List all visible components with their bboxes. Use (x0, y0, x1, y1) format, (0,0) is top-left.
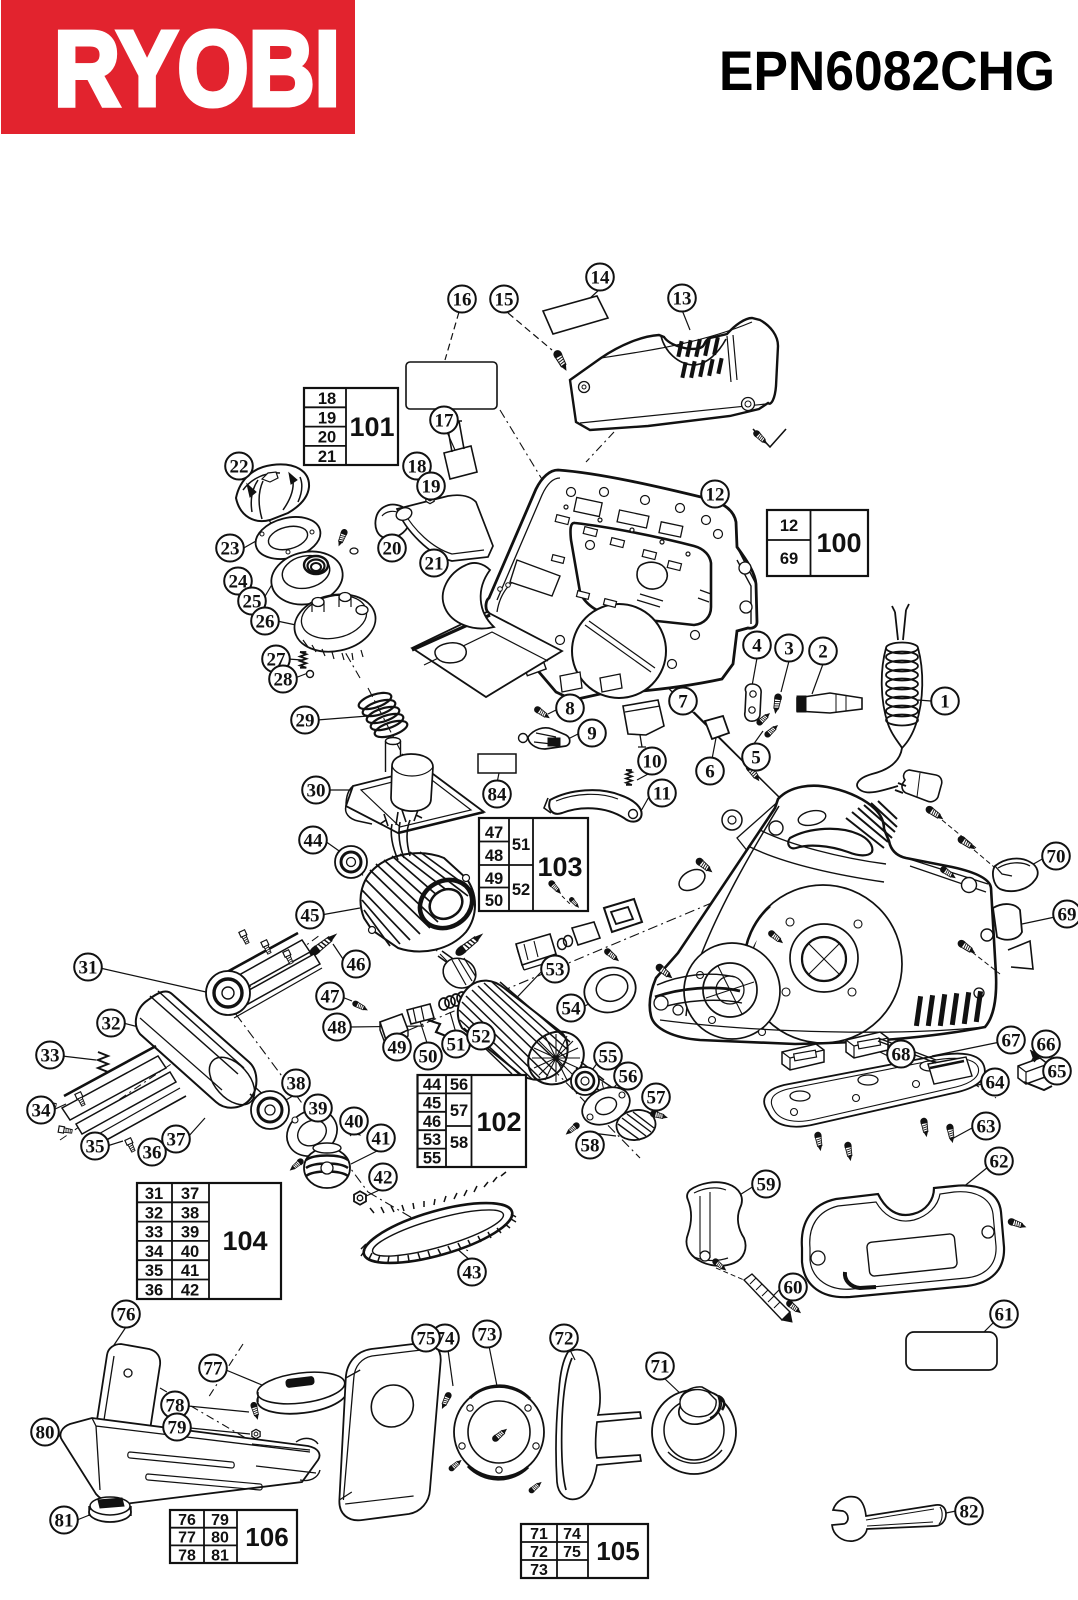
svg-text:69: 69 (780, 550, 798, 568)
svg-text:76: 76 (117, 1305, 136, 1326)
svg-text:19: 19 (318, 409, 336, 427)
svg-text:RYOBI: RYOBI (54, 10, 340, 128)
svg-text:31: 31 (79, 958, 98, 979)
svg-text:16: 16 (453, 290, 472, 311)
svg-text:57: 57 (450, 1102, 468, 1120)
svg-text:40: 40 (181, 1243, 199, 1261)
svg-text:56: 56 (450, 1076, 468, 1094)
svg-text:34: 34 (145, 1243, 164, 1261)
svg-text:21: 21 (425, 554, 444, 575)
svg-text:102: 102 (476, 1107, 521, 1137)
svg-text:70: 70 (1047, 847, 1066, 868)
svg-text:79: 79 (211, 1512, 229, 1529)
svg-text:33: 33 (145, 1224, 163, 1242)
svg-text:20: 20 (318, 429, 336, 447)
svg-text:12: 12 (780, 517, 798, 535)
svg-text:9: 9 (587, 724, 597, 745)
svg-text:40: 40 (345, 1112, 364, 1133)
svg-text:14: 14 (591, 268, 611, 289)
svg-text:58: 58 (450, 1134, 468, 1152)
svg-text:77: 77 (204, 1359, 224, 1380)
svg-text:39: 39 (181, 1224, 199, 1242)
svg-text:73: 73 (478, 1325, 497, 1346)
svg-text:30: 30 (307, 781, 326, 802)
svg-text:5: 5 (751, 748, 761, 769)
svg-text:54: 54 (562, 999, 582, 1020)
svg-text:72: 72 (555, 1329, 574, 1350)
svg-text:26: 26 (256, 612, 275, 633)
svg-text:19: 19 (422, 477, 441, 498)
svg-text:36: 36 (143, 1143, 162, 1164)
svg-text:57: 57 (647, 1088, 667, 1109)
svg-text:76: 76 (178, 1512, 196, 1529)
svg-text:29: 29 (296, 711, 315, 732)
svg-text:100: 100 (816, 528, 861, 558)
svg-text:44: 44 (423, 1076, 442, 1094)
svg-text:41: 41 (181, 1262, 199, 1280)
svg-text:34: 34 (32, 1101, 52, 1122)
svg-text:48: 48 (328, 1018, 347, 1039)
svg-text:10: 10 (643, 752, 662, 773)
svg-text:46: 46 (347, 955, 366, 976)
svg-text:69: 69 (1058, 905, 1077, 926)
svg-text:47: 47 (485, 824, 503, 842)
svg-text:8: 8 (565, 699, 575, 720)
svg-text:49: 49 (388, 1038, 407, 1059)
svg-text:12: 12 (706, 485, 725, 506)
svg-text:51: 51 (512, 836, 530, 854)
svg-text:37: 37 (181, 1185, 199, 1203)
svg-text:56: 56 (619, 1067, 638, 1088)
svg-text:67: 67 (1002, 1031, 1022, 1052)
svg-text:101: 101 (349, 412, 394, 442)
svg-text:13: 13 (673, 289, 692, 310)
svg-text:49: 49 (485, 870, 503, 888)
svg-text:68: 68 (892, 1045, 911, 1066)
svg-text:31: 31 (145, 1185, 163, 1203)
svg-text:84: 84 (488, 785, 508, 806)
svg-text:7: 7 (678, 692, 688, 713)
svg-text:47: 47 (321, 987, 341, 1008)
svg-text:15: 15 (495, 290, 514, 311)
svg-text:21: 21 (318, 448, 336, 466)
svg-text:73: 73 (530, 1562, 548, 1579)
svg-text:106: 106 (245, 1522, 288, 1552)
svg-text:2: 2 (818, 642, 828, 663)
svg-text:6: 6 (705, 762, 715, 783)
svg-text:58: 58 (581, 1136, 600, 1157)
svg-text:62: 62 (990, 1152, 1009, 1173)
svg-text:50: 50 (419, 1047, 438, 1068)
svg-text:42: 42 (374, 1168, 393, 1189)
svg-text:77: 77 (178, 1530, 196, 1547)
svg-text:104: 104 (222, 1226, 267, 1256)
svg-text:60: 60 (784, 1278, 803, 1299)
svg-text:51: 51 (447, 1035, 466, 1056)
svg-text:71: 71 (651, 1357, 670, 1378)
svg-text:66: 66 (1037, 1035, 1056, 1056)
svg-text:53: 53 (546, 960, 565, 981)
svg-text:35: 35 (86, 1137, 105, 1158)
svg-text:61: 61 (995, 1305, 1014, 1326)
svg-text:52: 52 (512, 881, 530, 899)
svg-text:20: 20 (383, 539, 402, 560)
svg-text:52: 52 (472, 1027, 491, 1048)
svg-text:75: 75 (417, 1329, 436, 1350)
svg-text:46: 46 (423, 1113, 441, 1131)
svg-text:44: 44 (304, 831, 324, 852)
svg-text:39: 39 (309, 1099, 328, 1120)
svg-text:71: 71 (530, 1526, 548, 1543)
svg-text:103: 103 (537, 852, 582, 882)
svg-text:75: 75 (563, 1544, 581, 1561)
svg-text:48: 48 (485, 847, 503, 865)
svg-text:55: 55 (423, 1150, 441, 1168)
svg-text:74: 74 (563, 1526, 581, 1543)
svg-text:1: 1 (940, 692, 950, 713)
svg-text:81: 81 (211, 1547, 229, 1564)
svg-text:80: 80 (211, 1530, 229, 1547)
svg-text:41: 41 (372, 1129, 391, 1150)
svg-text:11: 11 (653, 784, 671, 805)
svg-text:36: 36 (145, 1282, 163, 1300)
svg-text:3: 3 (784, 639, 794, 660)
svg-text:50: 50 (485, 892, 503, 910)
svg-text:28: 28 (274, 670, 293, 691)
svg-text:22: 22 (230, 457, 249, 478)
svg-text:37: 37 (167, 1130, 187, 1151)
svg-text:18: 18 (318, 390, 336, 408)
svg-text:105: 105 (596, 1536, 639, 1566)
svg-text:72: 72 (530, 1544, 548, 1561)
svg-text:4: 4 (752, 636, 762, 657)
svg-text:79: 79 (168, 1418, 187, 1439)
svg-text:45: 45 (301, 906, 320, 927)
svg-text:35: 35 (145, 1262, 163, 1280)
svg-text:38: 38 (181, 1204, 199, 1222)
svg-text:80: 80 (36, 1423, 55, 1444)
svg-text:42: 42 (181, 1282, 199, 1300)
svg-text:43: 43 (463, 1263, 482, 1284)
svg-text:45: 45 (423, 1094, 441, 1112)
svg-text:65: 65 (1048, 1062, 1067, 1083)
svg-text:17: 17 (435, 411, 455, 432)
svg-text:78: 78 (178, 1547, 196, 1564)
svg-text:64: 64 (986, 1073, 1006, 1094)
svg-text:33: 33 (41, 1046, 60, 1067)
svg-text:32: 32 (145, 1204, 163, 1222)
svg-text:23: 23 (221, 539, 240, 560)
svg-text:32: 32 (102, 1014, 121, 1035)
svg-text:38: 38 (287, 1074, 306, 1095)
svg-text:81: 81 (55, 1511, 74, 1532)
svg-text:EPN6082CHG: EPN6082CHG (719, 39, 1055, 102)
svg-text:53: 53 (423, 1131, 441, 1149)
svg-text:55: 55 (599, 1047, 618, 1068)
svg-text:63: 63 (977, 1117, 996, 1138)
svg-text:82: 82 (960, 1502, 979, 1523)
svg-text:59: 59 (757, 1175, 776, 1196)
